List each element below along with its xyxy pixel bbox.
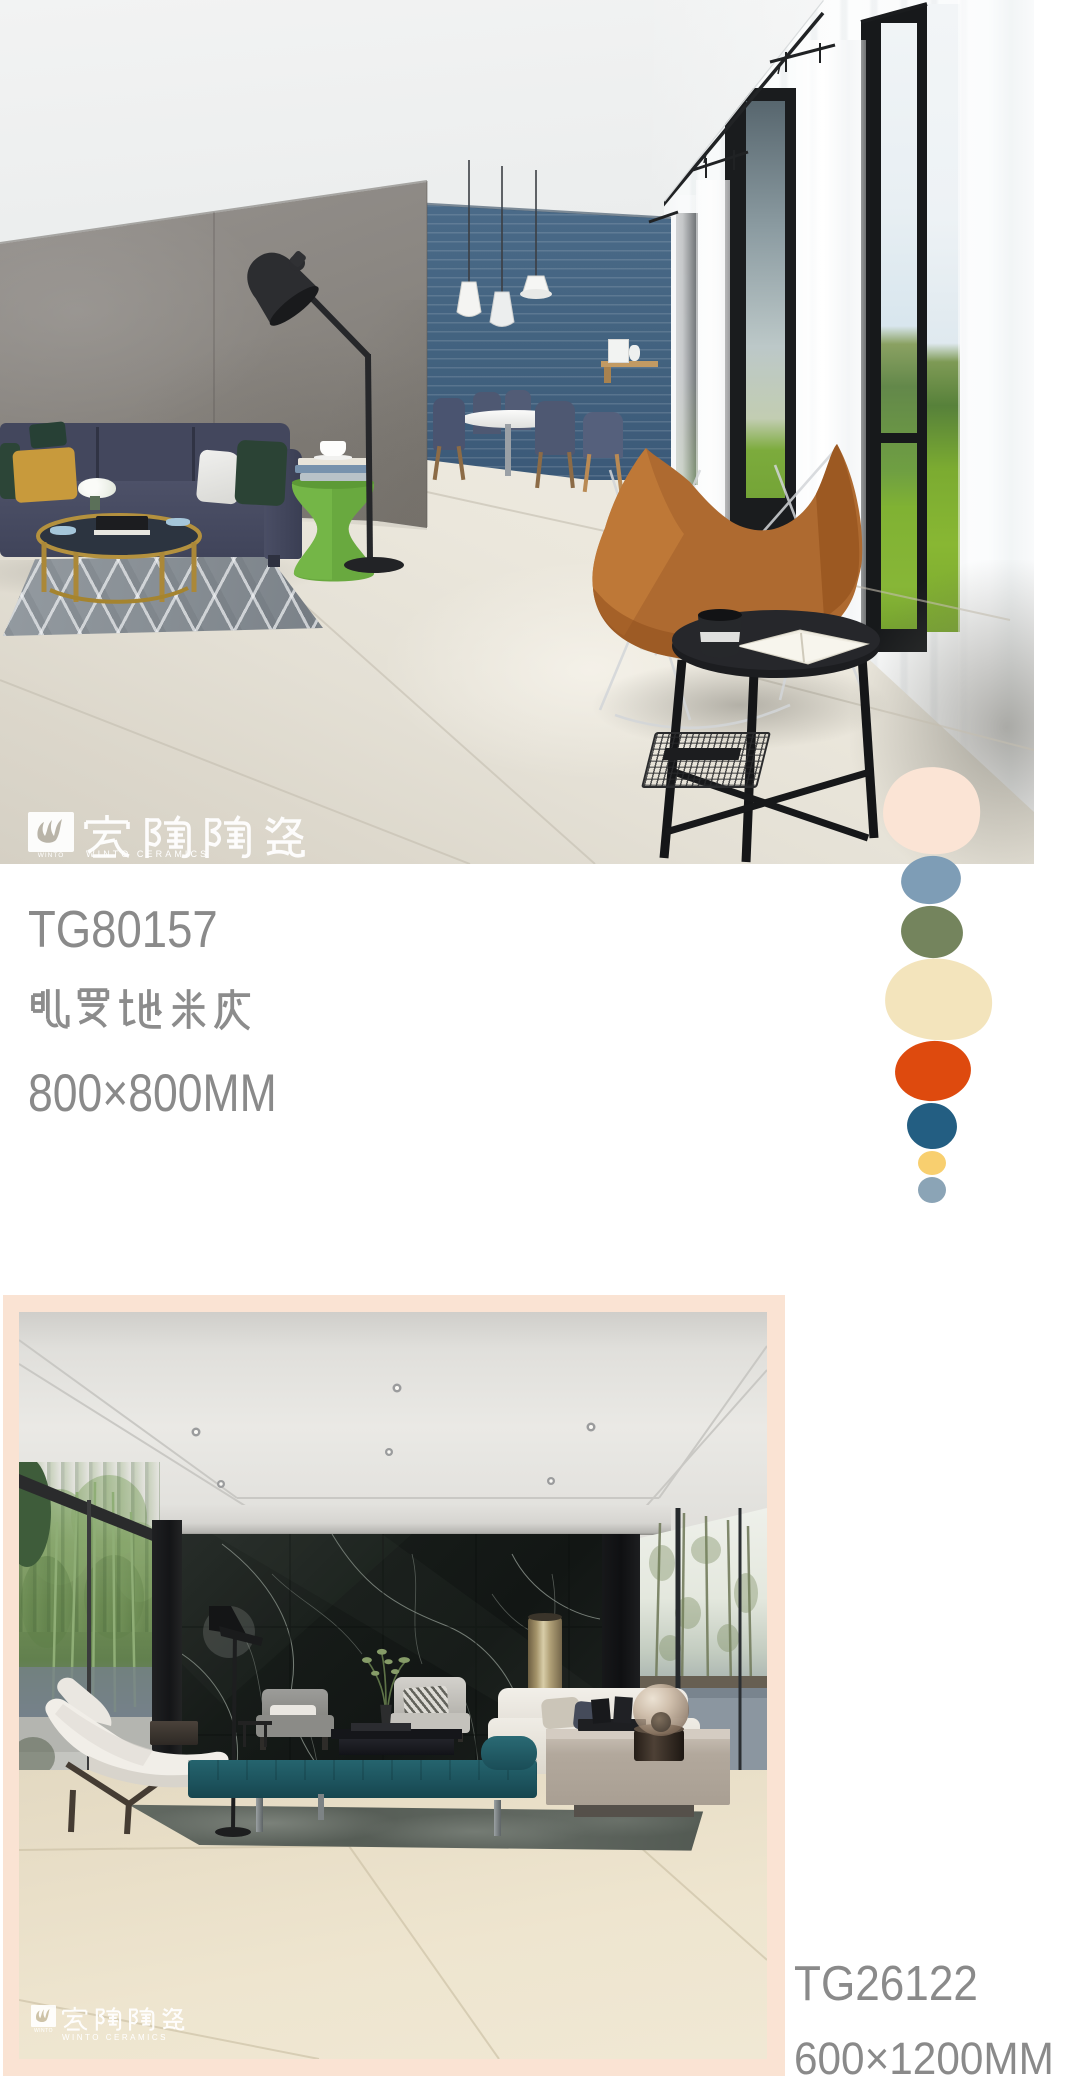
svg-text:WINTO CERAMICS: WINTO CERAMICS — [86, 849, 209, 859]
